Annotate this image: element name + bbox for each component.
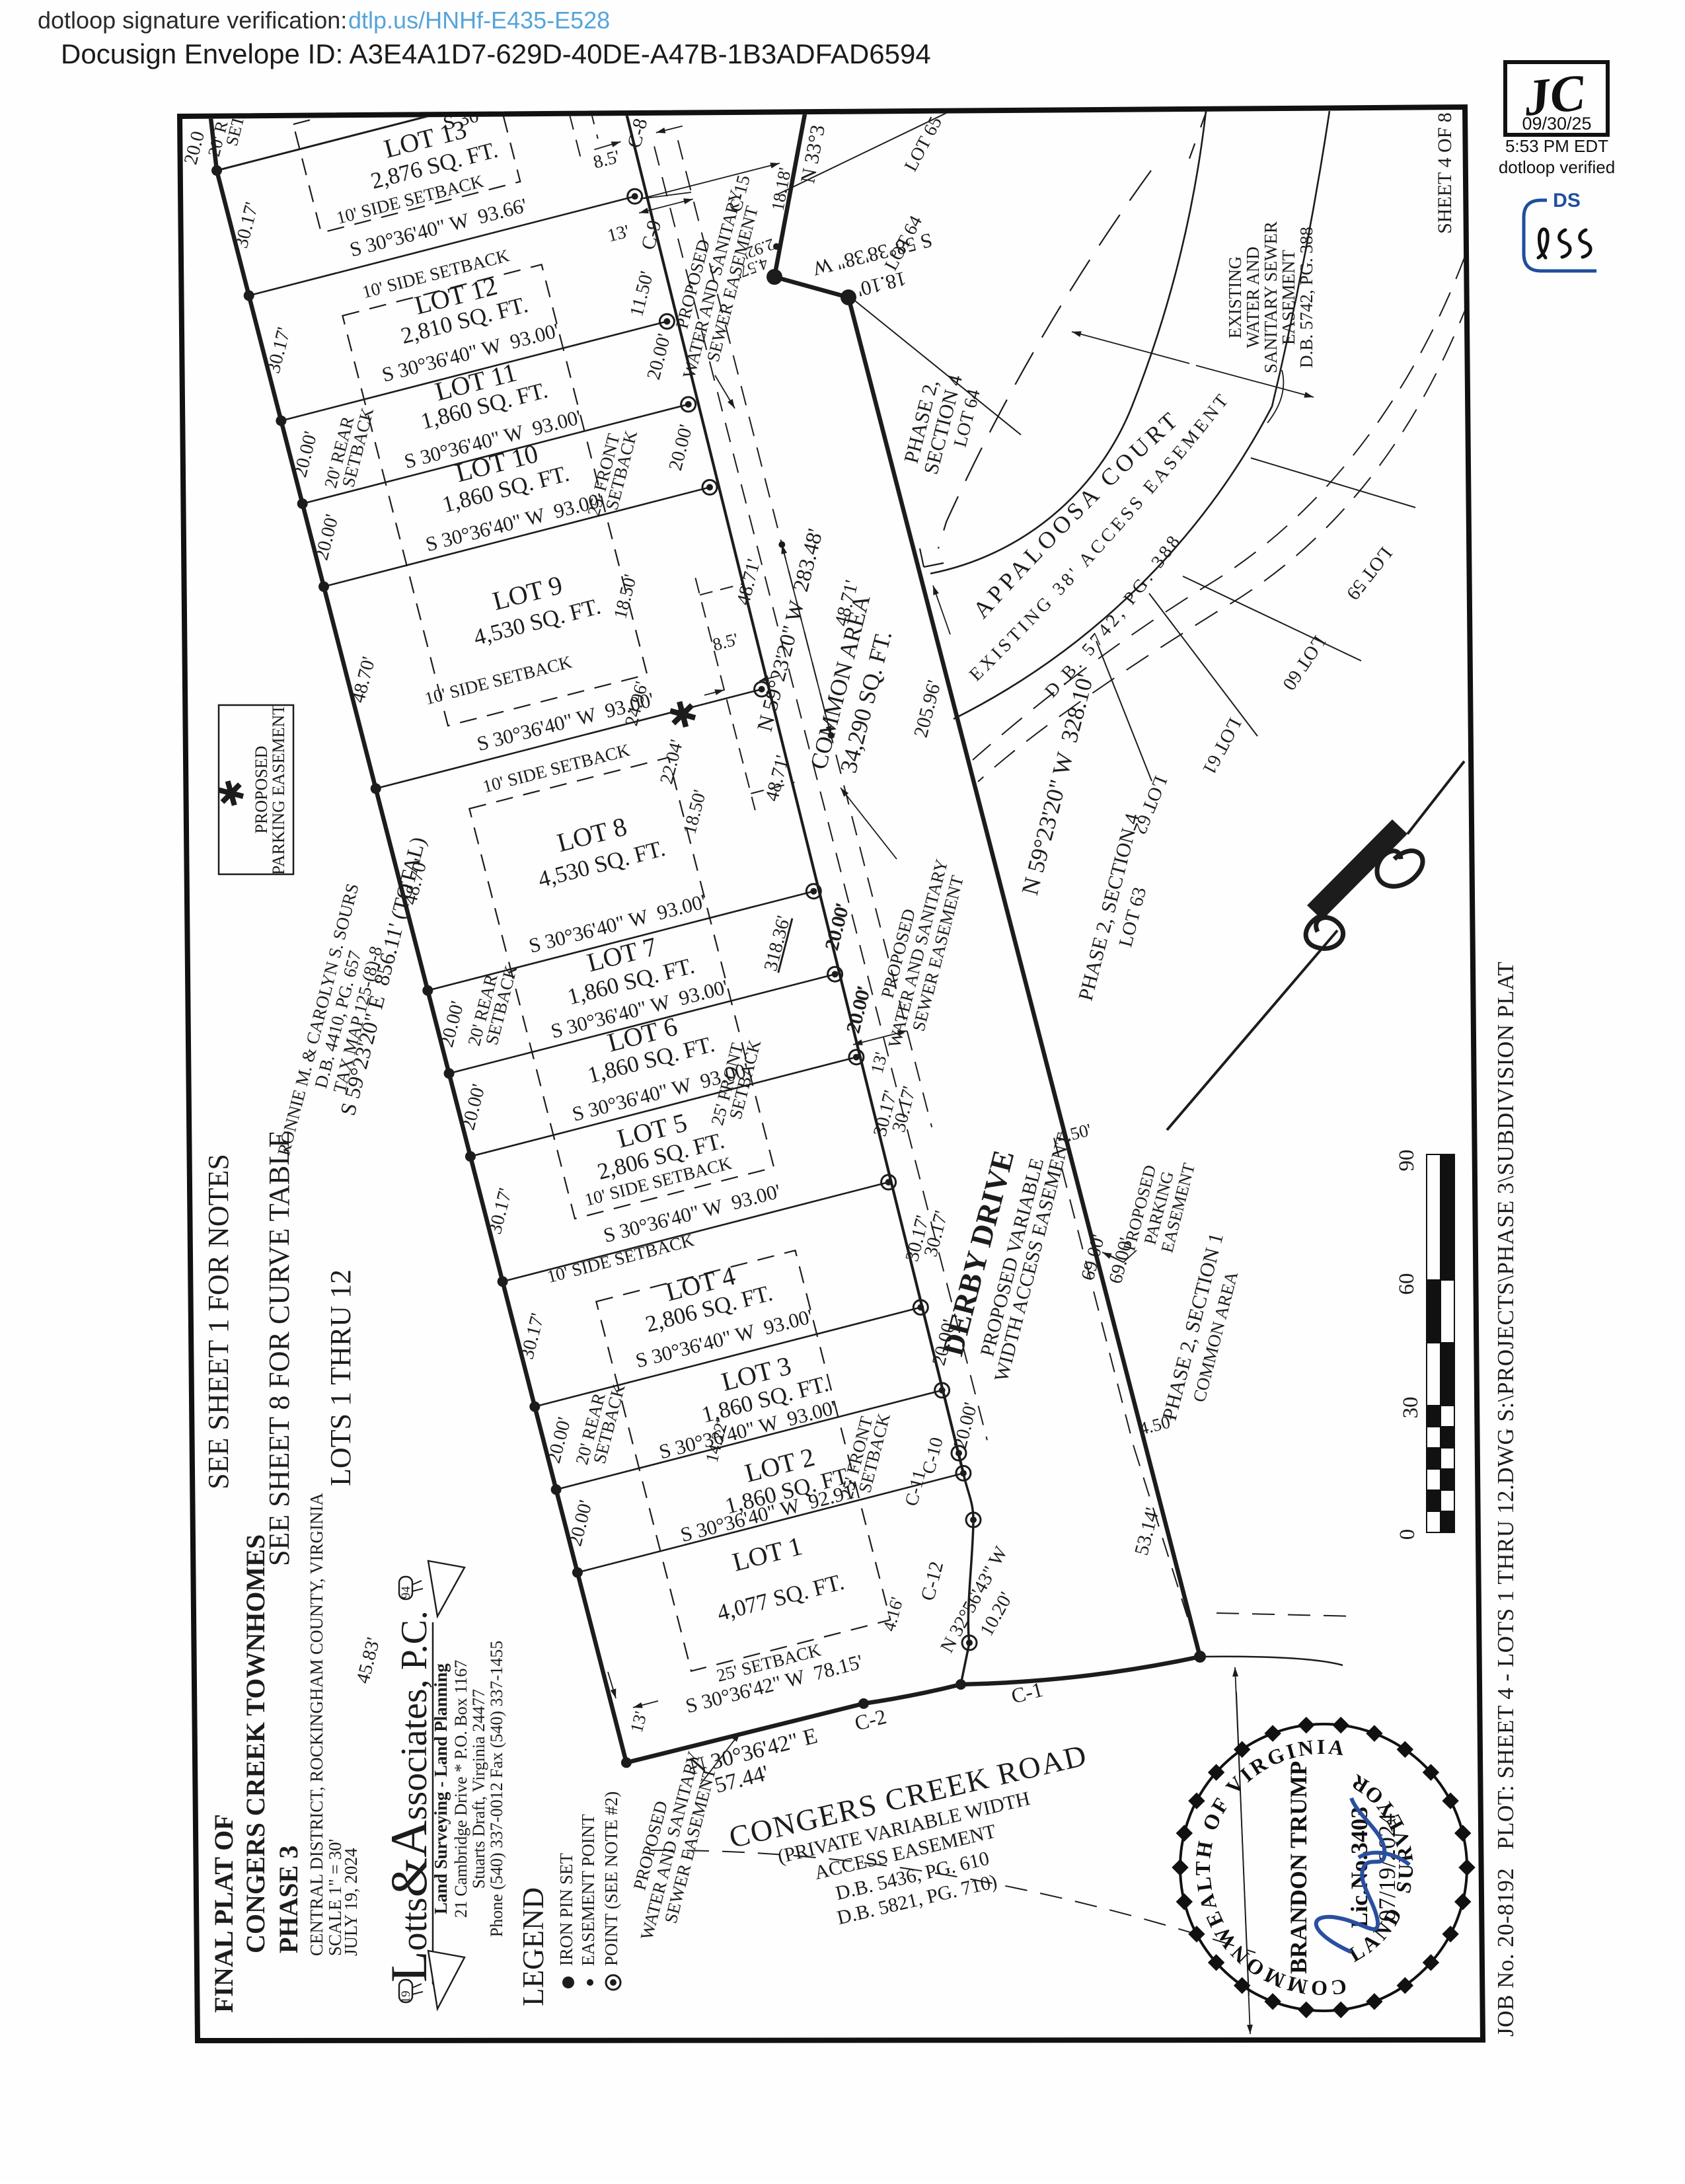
svg-text:PARKING EASEMENT: PARKING EASEMENT — [269, 704, 288, 875]
svg-text:CENTRAL DISTRICT, ROCKINGHAM C: CENTRAL DISTRICT, ROCKINGHAM COUNTY, VIR… — [307, 1493, 326, 1956]
svg-text:07/19/2024: 07/19/2024 — [1374, 1813, 1400, 1922]
svg-text:19: 19 — [399, 1991, 413, 2004]
svg-text:Stuarts Draft, Virginia 24477: Stuarts Draft, Virginia 24477 — [469, 1689, 488, 1889]
svg-text:Land Surveying - Land Planning: Land Surveying - Land Planning — [431, 1663, 451, 1914]
svg-text:JULY 19, 2024: JULY 19, 2024 — [341, 1848, 361, 1956]
svg-text:94: 94 — [399, 1586, 413, 1599]
svg-text:Docusign Envelope ID: A3E4A1D7: Docusign Envelope ID: A3E4A1D7-629D-40DE… — [61, 38, 931, 69]
svg-text:SEE SHEET 8 FOR CURVE TABLE: SEE SHEET 8 FOR CURVE TABLE — [263, 1130, 295, 1566]
svg-text:DS: DS — [1553, 190, 1581, 211]
svg-text:JOB No. 20-8192 PLOT: SHEET: JOB No. 20-8192 PLOT: SHEET 4 - LOTS 1 T… — [1493, 961, 1518, 2037]
svg-text:21 Cambridge Drive * P.O. Box: 21 Cambridge Drive * P.O. Box 1167 — [451, 1660, 470, 1918]
svg-text:LOTS 1 THRU 12: LOTS 1 THRU 12 — [324, 1269, 357, 1486]
svg-text:FINAL PLAT OF: FINAL PLAT OF — [209, 1814, 239, 2013]
svg-text:POINT (SEE NOTE #2): POINT (SEE NOTE #2) — [601, 1791, 621, 1966]
svg-text:BRANDON TRUMP: BRANDON TRUMP — [1285, 1761, 1312, 1974]
svg-text:EXISTING: EXISTING — [1225, 256, 1245, 338]
svg-text:SHEET 4 OF 8: SHEET 4 OF 8 — [1434, 112, 1456, 234]
svg-text:EASEMENT POINT: EASEMENT POINT — [578, 1814, 598, 1966]
svg-text:SEE SHEET 1 FOR NOTES: SEE SHEET 1 FOR NOTES — [202, 1154, 235, 1489]
svg-text:LEGEND: LEGEND — [517, 1887, 550, 2006]
svg-text:dotloop verified: dotloop verified — [1499, 157, 1615, 177]
svg-text:WATER AND: WATER AND — [1243, 246, 1263, 348]
svg-text:IRON PIN SET: IRON PIN SET — [556, 1852, 576, 1966]
svg-text:SANITARY SEWER: SANITARY SEWER — [1261, 221, 1281, 373]
svg-text:PROPOSED: PROPOSED — [252, 746, 271, 834]
svg-text:dtlp.us/HNHf-E435-E528: dtlp.us/HNHf-E435-E528 — [348, 7, 610, 34]
svg-text:EASEMENT: EASEMENT — [1279, 250, 1298, 345]
svg-text:09/30/25: 09/30/25 — [1522, 114, 1591, 133]
svg-text:5:53 PM EDT: 5:53 PM EDT — [1505, 136, 1608, 156]
svg-text:0: 0 — [1396, 1529, 1419, 1540]
svg-text:30: 30 — [1399, 1397, 1423, 1419]
svg-text:D.B. 5742, PG. 388: D.B. 5742, PG. 388 — [1296, 227, 1316, 368]
svg-text:PHASE 3: PHASE 3 — [274, 1846, 303, 1953]
svg-text:60: 60 — [1395, 1273, 1419, 1295]
svg-text:90: 90 — [1395, 1150, 1419, 1172]
svg-text:dotloop signature verification: dotloop signature verification: — [38, 7, 347, 34]
svg-text:CONGERS CREEK TOWNHOMES: CONGERS CREEK TOWNHOMES — [241, 1534, 270, 1953]
svg-text:Phone (540) 337-0012 Fax (540): Phone (540) 337-0012 Fax (540) 337-1455 — [487, 1641, 506, 1937]
